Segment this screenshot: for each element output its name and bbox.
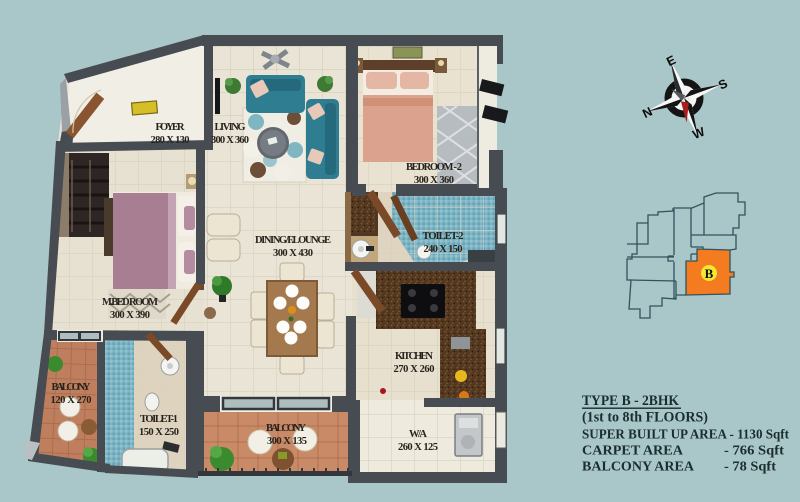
svg-text:KITCHEN: KITCHEN <box>395 351 433 362</box>
svg-text:- 78 Sqft: - 78 Sqft <box>724 460 776 475</box>
svg-text:LIVING: LIVING <box>215 122 246 133</box>
svg-text:300 X 360: 300 X 360 <box>414 175 454 186</box>
svg-text:TOILET-2: TOILET-2 <box>423 231 464 242</box>
svg-text:300 X 135: 300 X 135 <box>267 436 307 447</box>
svg-text:BEDROOM - 2: BEDROOM - 2 <box>406 162 462 173</box>
svg-text:FOYER: FOYER <box>156 122 185 133</box>
svg-text:- 766 Sqft: - 766 Sqft <box>724 444 784 459</box>
svg-text:TOILET-1: TOILET-1 <box>140 414 178 425</box>
svg-text:120 X 270: 120 X 270 <box>51 395 92 406</box>
svg-text:150 X 250: 150 X 250 <box>139 427 179 438</box>
svg-text:M.BED ROOM: M.BED ROOM <box>102 297 158 308</box>
svg-text:(1st to 8th FLOORS): (1st to 8th FLOORS) <box>582 410 708 426</box>
svg-text:TYPE B - 2BHK: TYPE B - 2BHK <box>582 393 680 409</box>
svg-text:260 X 125: 260 X 125 <box>398 442 438 453</box>
svg-text:CARPET AREA: CARPET AREA <box>582 444 684 459</box>
svg-text:SUPER BUILT UP AREA - 1130 Sqf: SUPER BUILT UP AREA - 1130 Sqft <box>582 428 789 443</box>
svg-text:BALCONY: BALCONY <box>52 382 91 393</box>
svg-text:BALCONY: BALCONY <box>266 423 306 434</box>
svg-text:B: B <box>705 266 714 281</box>
svg-text:270 X 260: 270 X 260 <box>394 364 435 375</box>
svg-text:DINING/F.LOUNGE: DINING/F.LOUNGE <box>255 235 331 246</box>
svg-text:300 X 390: 300 X 390 <box>110 310 150 321</box>
svg-text:280 X 130: 280 X 130 <box>151 135 190 146</box>
svg-text:BALCONY AREA: BALCONY AREA <box>582 460 695 475</box>
svg-text:300 X 360: 300 X 360 <box>211 135 249 146</box>
svg-text:W/A: W/A <box>409 429 427 440</box>
svg-text:240 X 150: 240 X 150 <box>424 244 463 255</box>
svg-text:300 X 430: 300 X 430 <box>273 248 313 259</box>
